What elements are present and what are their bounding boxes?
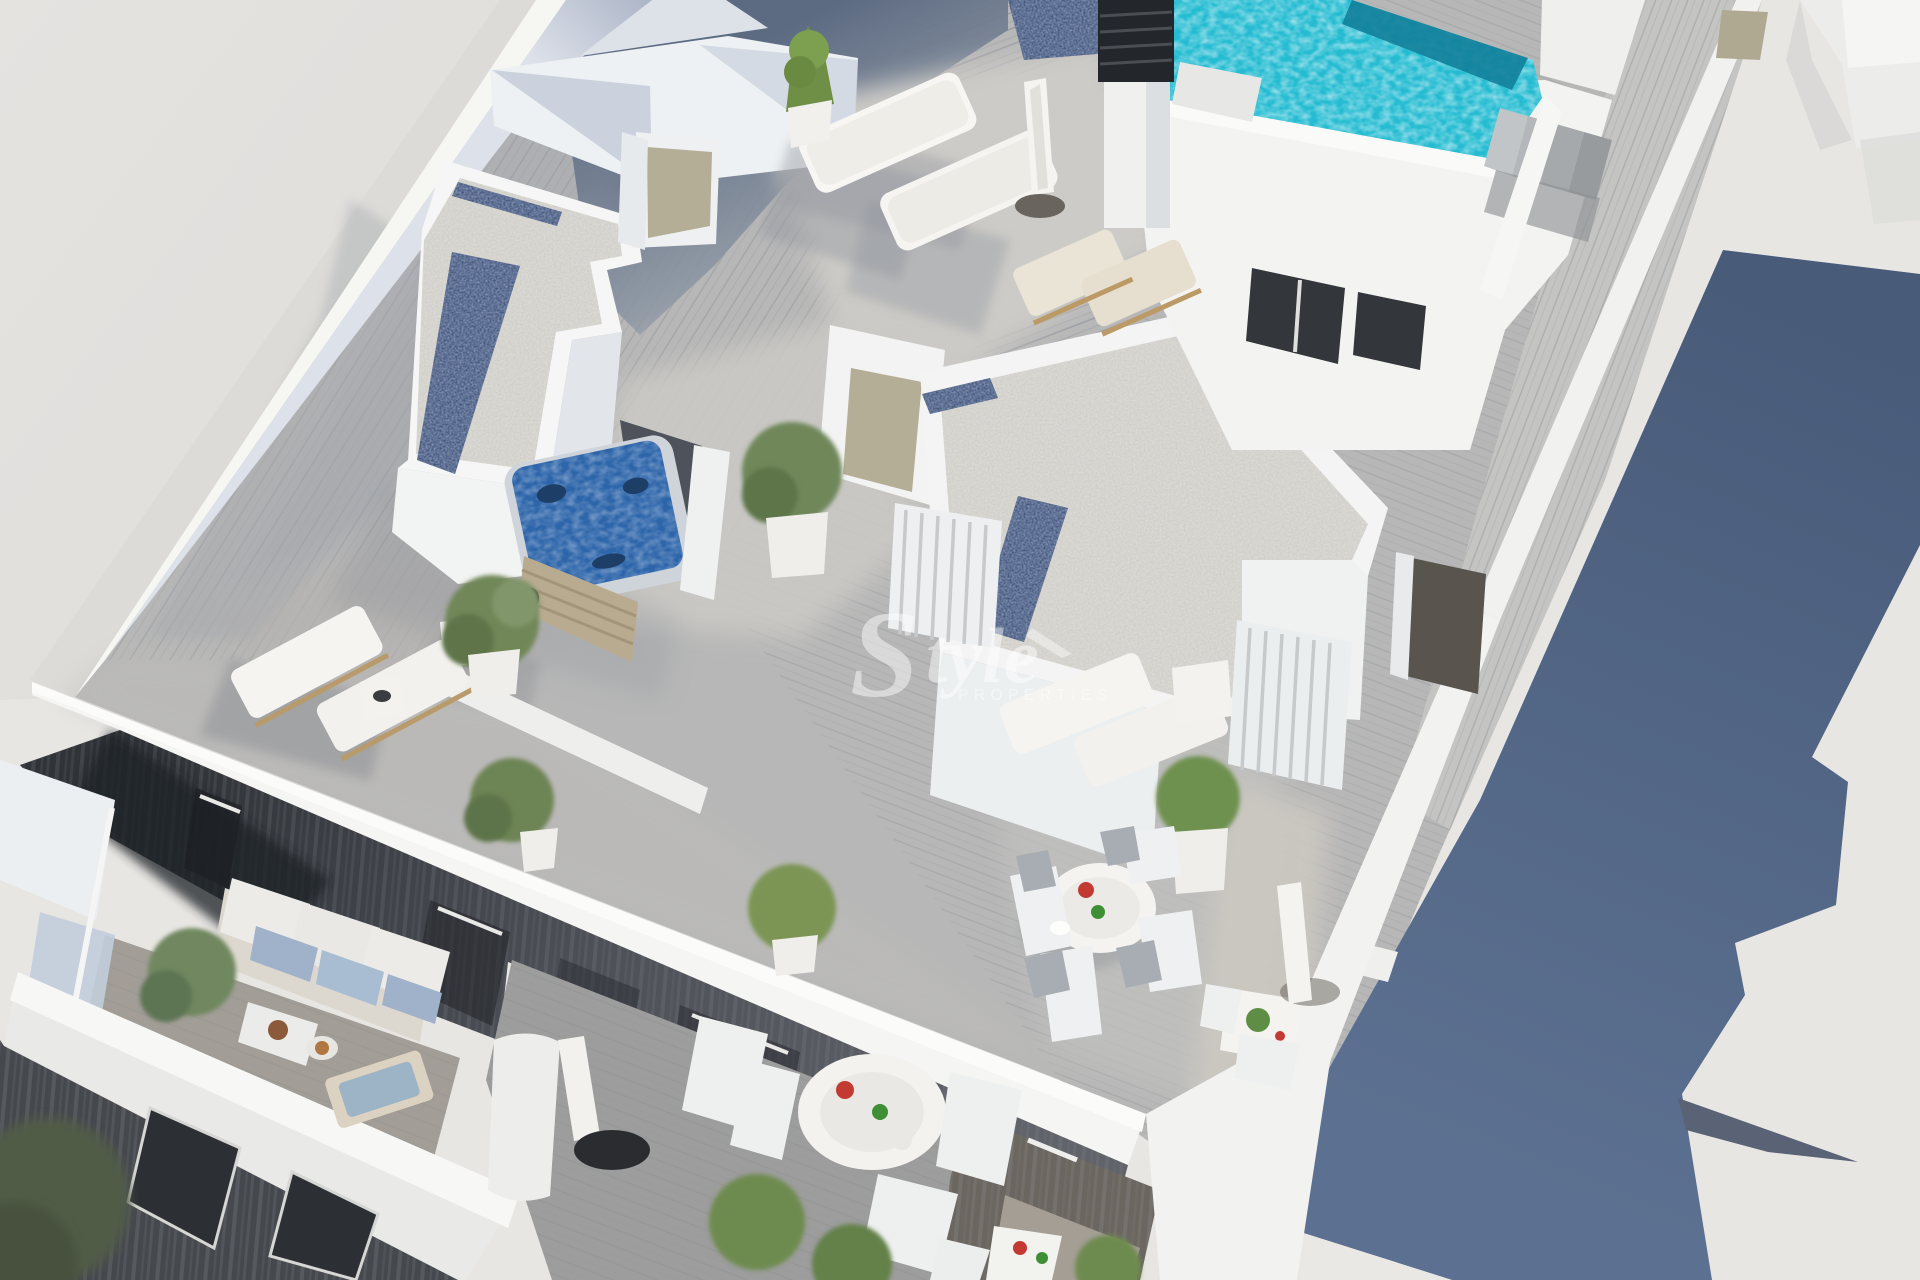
svg-text:PROPERTIES: PROPERTIES [958, 687, 1113, 704]
svg-text:S: S [850, 586, 919, 723]
svg-text:tyle: tyle [926, 612, 1039, 699]
